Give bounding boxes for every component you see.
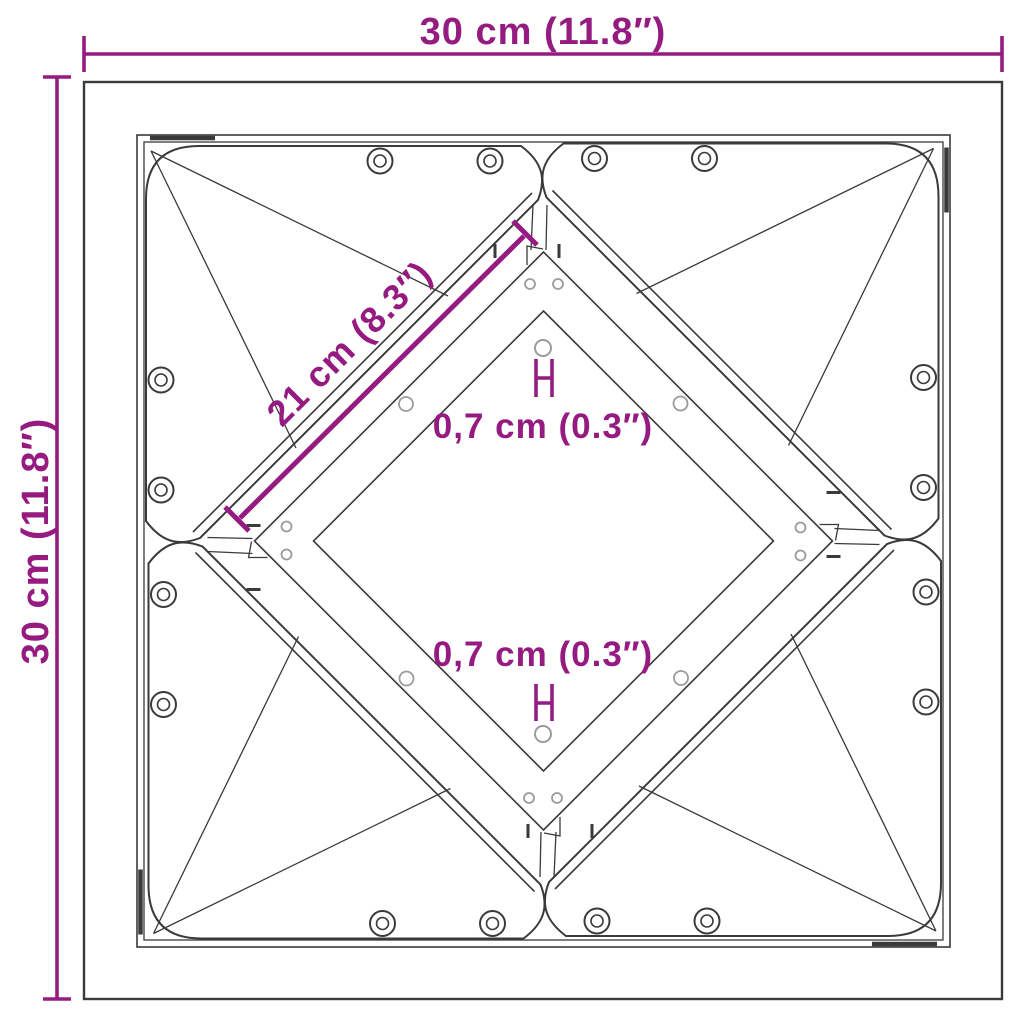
mounting-hole-bottom	[535, 726, 551, 742]
dimension-hole-top: 0,7 cm (0.3″)	[433, 359, 653, 446]
dimension-width-label: 30 cm (11.8″)	[420, 11, 667, 53]
dimension-height-label: 30 cm (11.8″)	[15, 418, 57, 665]
dimension-width: 30 cm (11.8″)	[84, 11, 1002, 72]
dimension-height: 30 cm (11.8″)	[15, 77, 71, 999]
mounting-hole-top	[535, 340, 551, 356]
dimension-hole-bottom-label: 0,7 cm (0.3″)	[433, 635, 653, 674]
hole-bracket-icon	[536, 684, 552, 721]
corner-plate-top-right	[542, 144, 946, 561]
corner-plate-bottom-right	[524, 540, 941, 944]
corner-plate-bottom-left	[141, 522, 545, 939]
hole-bracket-icon	[536, 359, 552, 397]
dimension-hole-bottom: 0,7 cm (0.3″)	[433, 635, 653, 721]
dimension-diagram-page: 30 cm (11.8″) 30 cm (11.8″) 21 cm (8.3″)…	[0, 0, 1024, 1024]
dimension-diagram: 30 cm (11.8″) 30 cm (11.8″) 21 cm (8.3″)…	[0, 0, 1024, 1024]
dimension-hole-top-label: 0,7 cm (0.3″)	[433, 407, 653, 446]
